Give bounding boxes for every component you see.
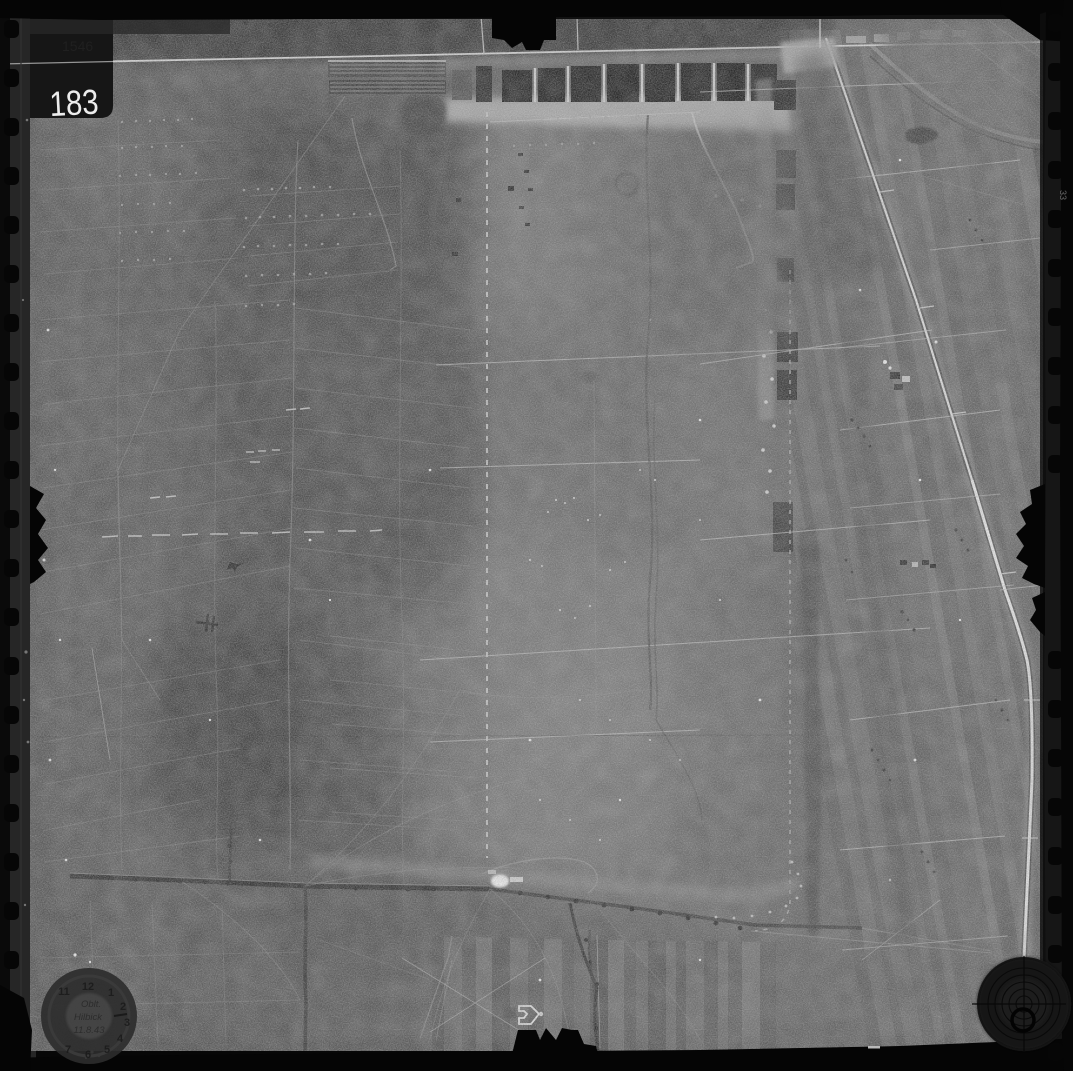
svg-text:11: 11 xyxy=(58,986,70,998)
svg-text:2: 2 xyxy=(120,1001,126,1013)
svg-text:11.8.43: 11.8.43 xyxy=(74,1025,106,1036)
svg-text:Oblt.: Oblt. xyxy=(81,999,101,1010)
svg-text:Hilbick: Hilbick xyxy=(74,1012,103,1023)
svg-text:1546: 1546 xyxy=(62,38,93,54)
svg-text:7: 7 xyxy=(65,1044,71,1056)
svg-text:12: 12 xyxy=(82,981,94,993)
svg-text:6: 6 xyxy=(85,1049,91,1061)
svg-text:1: 1 xyxy=(108,987,114,999)
svg-text:5: 5 xyxy=(104,1044,110,1056)
svg-text:183: 183 xyxy=(49,82,100,123)
svg-text:4: 4 xyxy=(117,1033,124,1045)
svg-text:33: 33 xyxy=(1058,190,1068,200)
svg-text:3: 3 xyxy=(124,1017,130,1029)
